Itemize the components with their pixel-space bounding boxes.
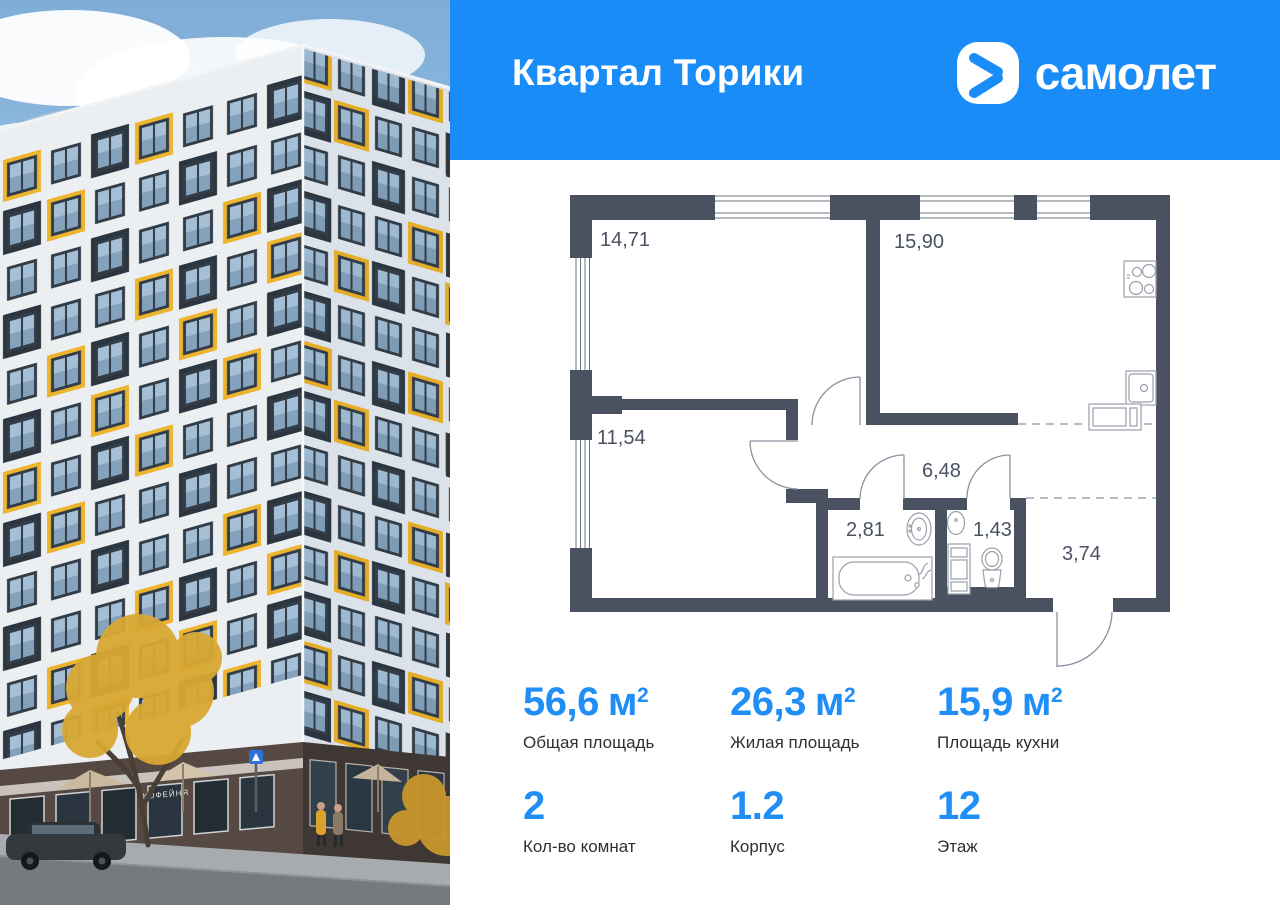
stat-label: Этаж: [937, 837, 1142, 857]
stat-label: Общая площадь: [523, 733, 728, 753]
project-title: Квартал Торики: [512, 52, 804, 94]
bathtub: [833, 557, 932, 600]
room-label: 15,90: [894, 231, 944, 253]
stat-label: Жилая площадь: [730, 733, 935, 753]
floor-plan: 14,71 15,90 11,54 6,48 2,81 1,43 3,74: [555, 180, 1180, 690]
samolet-logo: самолет: [956, 41, 1216, 105]
room-label: 11,54: [597, 427, 646, 449]
stat-kitchen-area: 15,9м2 Площадь кухни: [937, 682, 1142, 753]
room-label: 14,71: [600, 229, 650, 251]
room-label: 3,74: [1062, 543, 1101, 565]
stat-value: 1.2: [730, 786, 935, 826]
stat-floor-number: 12 Этаж: [937, 786, 1142, 857]
toilet: [982, 548, 1002, 588]
dashed-lines: [1018, 424, 1156, 498]
stat-value: 2: [523, 786, 728, 826]
stat-building-number: 1.2 Корпус: [730, 786, 935, 857]
stat-value: 26,3м2: [730, 682, 935, 722]
building-photo: КОФЕЙНЯ: [0, 0, 450, 905]
stat-rooms-count: 2 Кол-во комнат: [523, 786, 728, 857]
building: КОФЕЙНЯ: [0, 45, 450, 878]
washing-machine: [948, 544, 970, 594]
stat-label: Корпус: [730, 837, 935, 857]
stat-living-area: 26,3м2 Жилая площадь: [730, 682, 935, 753]
room-label: 6,48: [922, 460, 961, 482]
microwave: [1089, 404, 1141, 430]
stat-value: 15,9м2: [937, 682, 1142, 722]
header-bar: Квартал Торики самолет: [450, 0, 1280, 160]
stat-value: 56,6м2: [523, 682, 728, 722]
samolet-wordmark: самолет: [1035, 46, 1216, 100]
stat-label: Площадь кухни: [937, 733, 1142, 753]
stat-value: 12: [937, 786, 1142, 826]
stat-label: Кол-во комнат: [523, 837, 728, 857]
room-label: 1,43: [973, 519, 1012, 541]
stove: [1124, 261, 1156, 297]
plan-fixtures: [833, 261, 1156, 600]
room-label: 2,81: [846, 519, 885, 541]
wc-sink: [948, 512, 965, 535]
stat-total-area: 56,6м2 Общая площадь: [523, 682, 728, 753]
kitchen-sink: [1126, 371, 1156, 405]
samolet-logo-icon: [956, 41, 1020, 105]
bath-sink: [907, 513, 931, 545]
